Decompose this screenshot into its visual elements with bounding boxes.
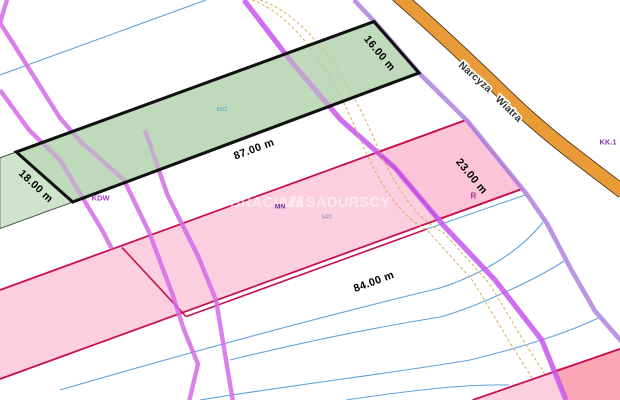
svg-text:SADURSCY: SADURSCY — [306, 195, 391, 211]
svg-text:MN: MN — [275, 204, 286, 211]
svg-text:54/1: 54/1 — [322, 215, 333, 221]
svg-text:R: R — [471, 192, 477, 201]
svg-text:KDW: KDW — [92, 194, 111, 203]
svg-text:KK.1: KK.1 — [599, 138, 616, 147]
svg-text:52/1: 52/1 — [217, 107, 228, 113]
